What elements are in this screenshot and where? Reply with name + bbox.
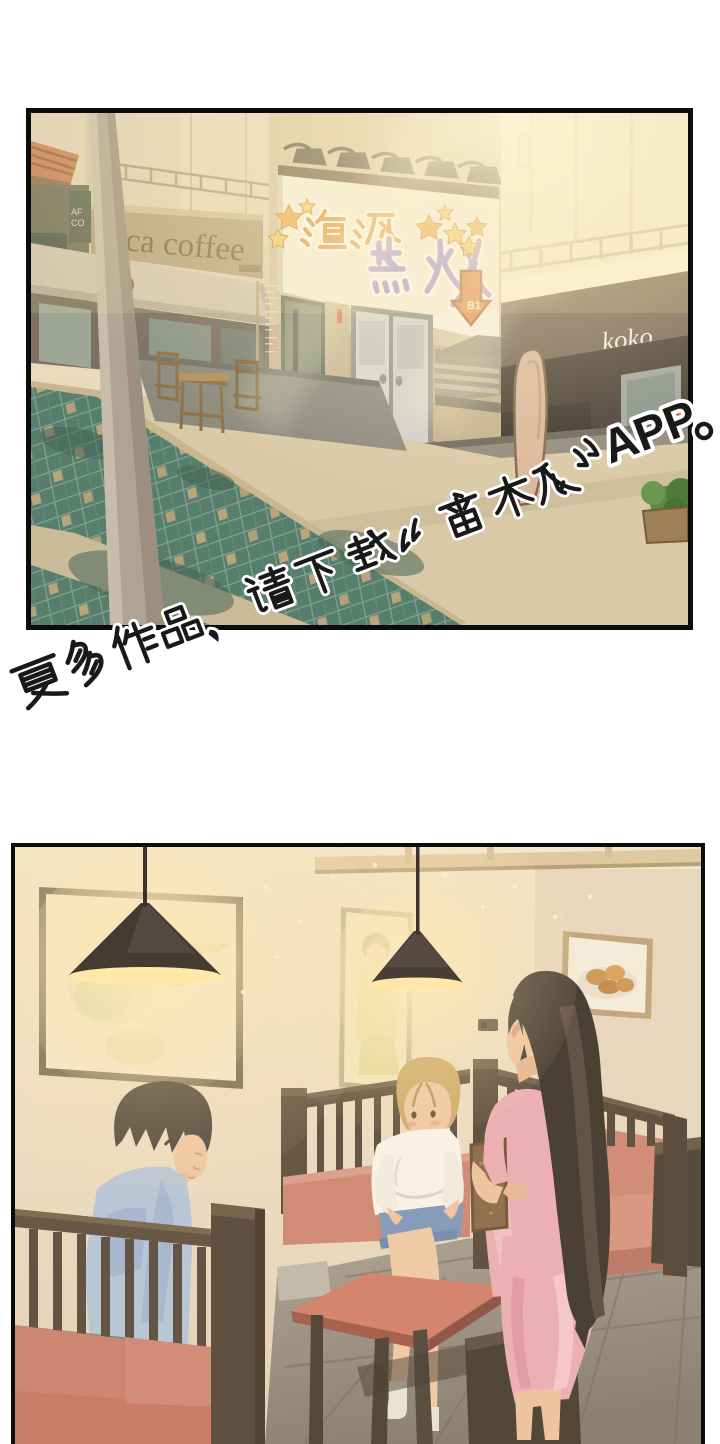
svg-text:APP: APP [595,389,704,473]
